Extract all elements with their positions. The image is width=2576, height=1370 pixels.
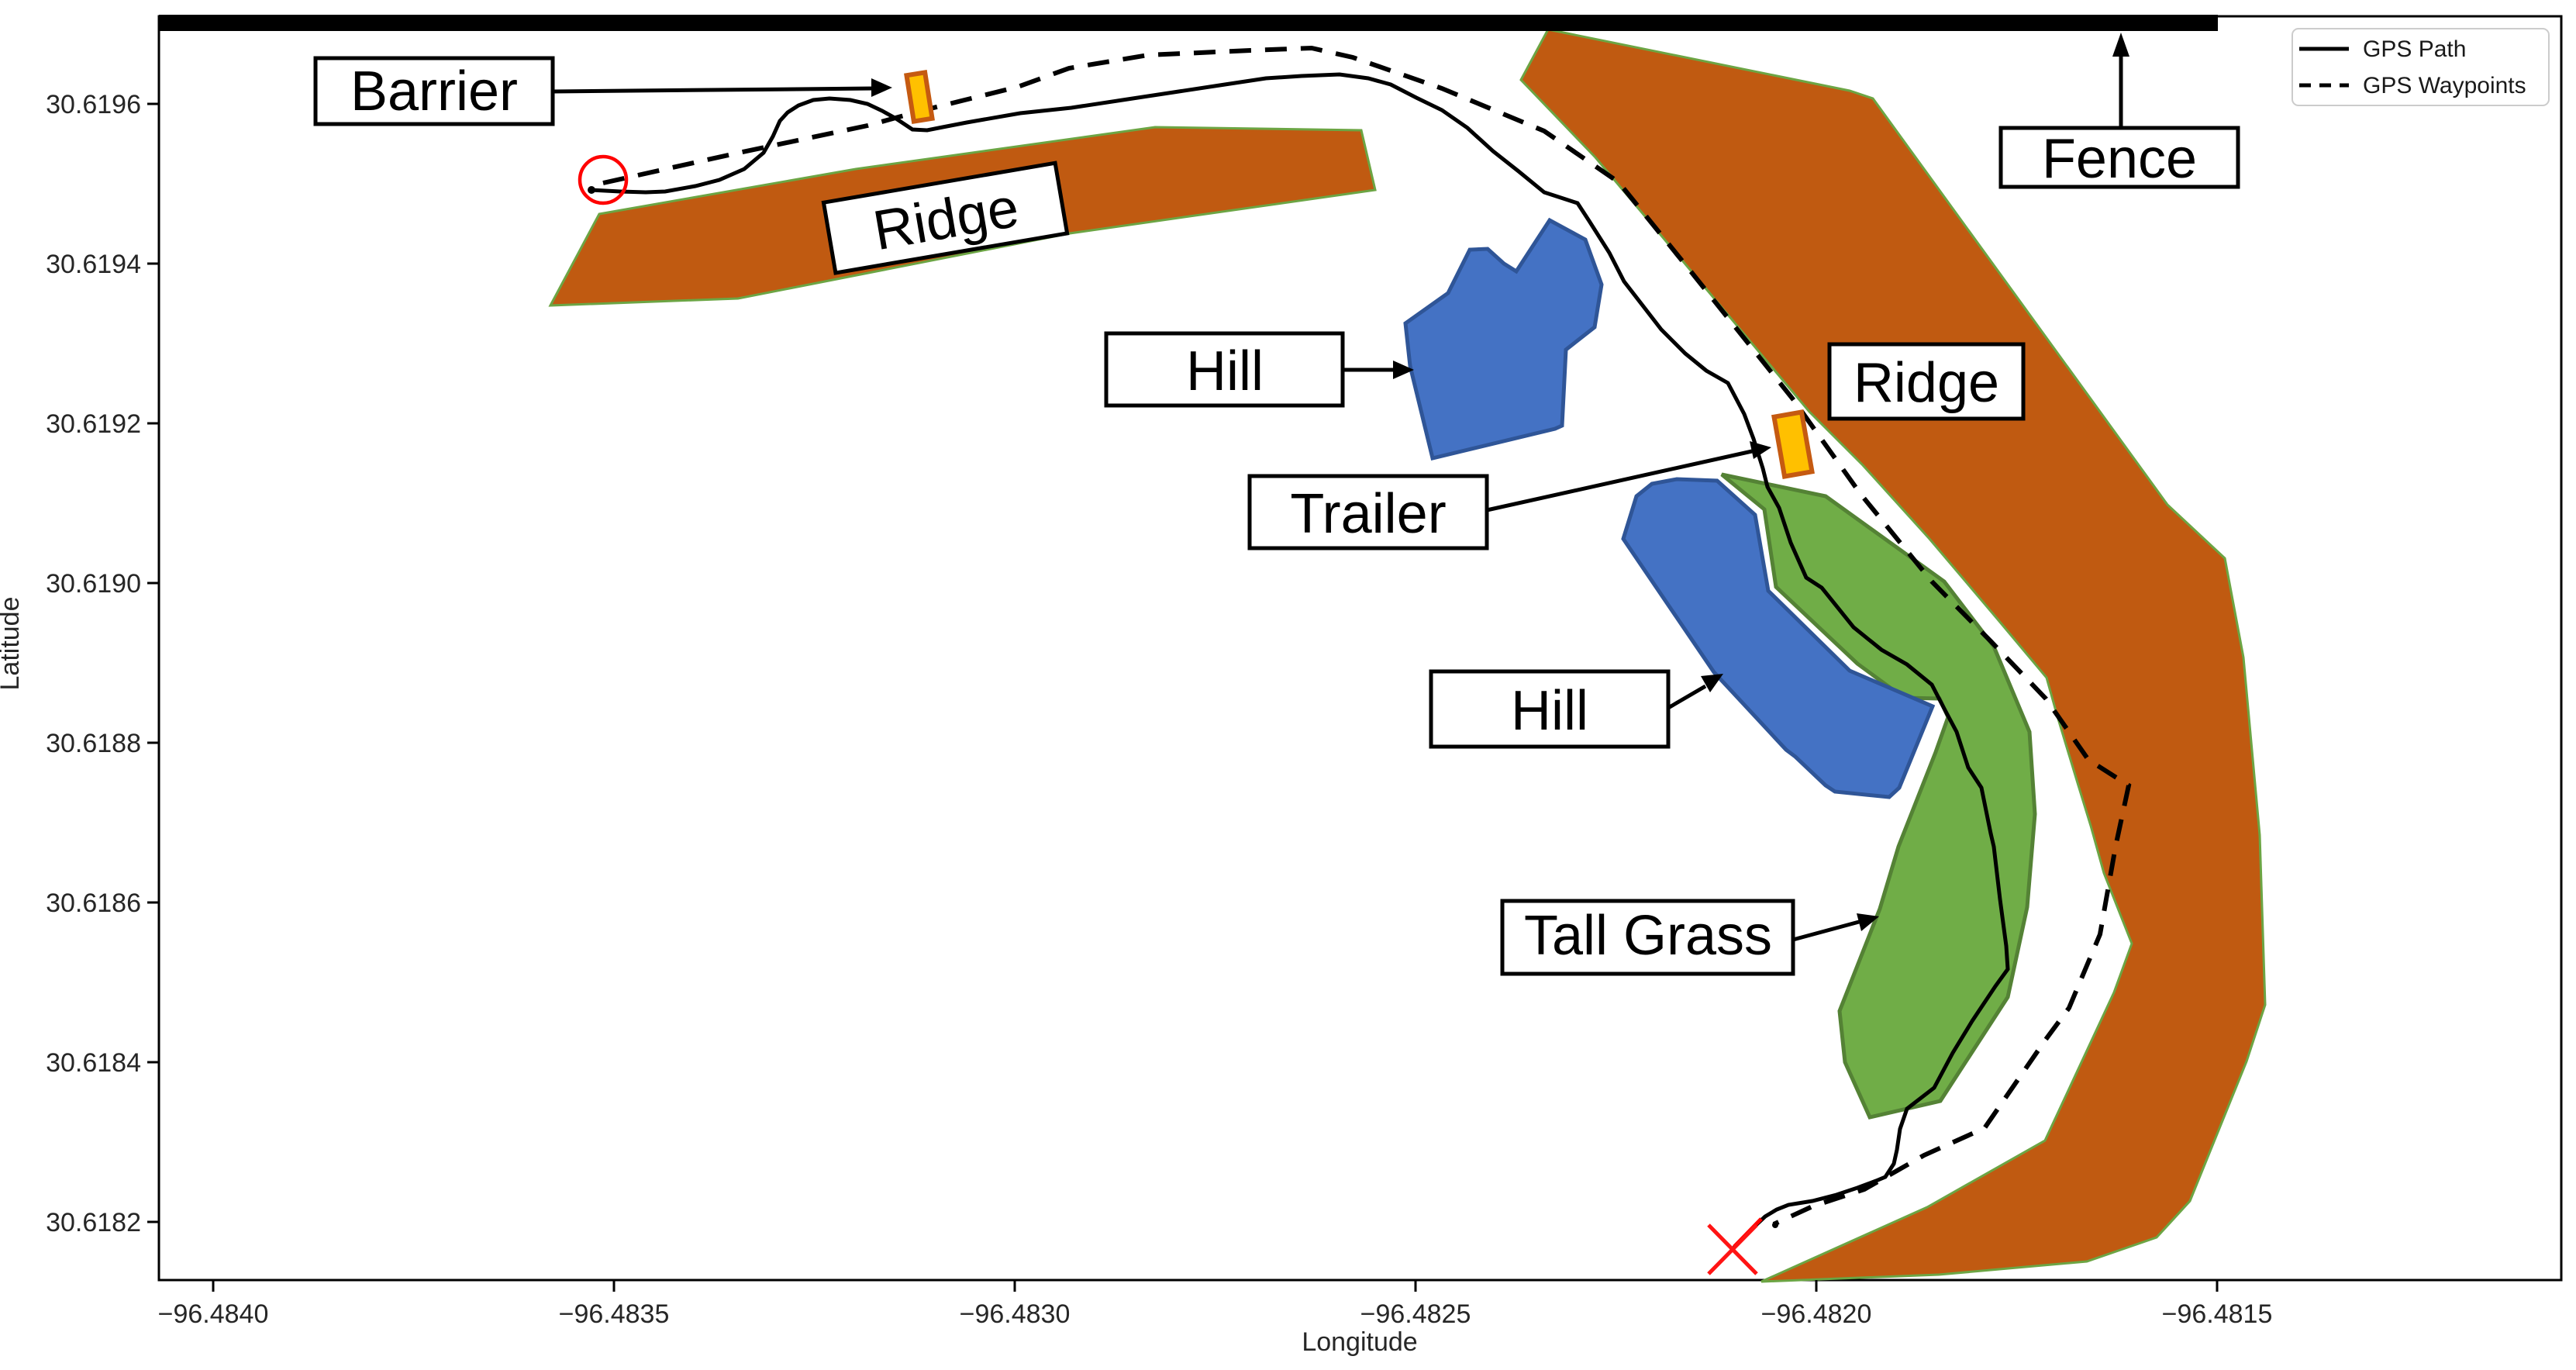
svg-text:Longitude: Longitude (1302, 1327, 1417, 1357)
svg-text:Tall Grass: Tall Grass (1524, 905, 1772, 967)
svg-text:−96.4835: −96.4835 (559, 1299, 670, 1329)
svg-text:30.6188: 30.6188 (46, 729, 141, 758)
svg-text:Hill: Hill (1186, 340, 1264, 402)
svg-text:30.6194: 30.6194 (46, 250, 141, 279)
svg-text:GPS Waypoints: GPS Waypoints (2363, 73, 2526, 98)
svg-text:Barrier: Barrier (350, 60, 518, 123)
svg-text:Latitude: Latitude (0, 597, 25, 691)
svg-text:30.6190: 30.6190 (46, 569, 141, 599)
svg-text:−96.4825: −96.4825 (1360, 1299, 1471, 1329)
svg-text:Trailer: Trailer (1290, 483, 1446, 545)
svg-text:GPS Path: GPS Path (2363, 36, 2466, 62)
svg-text:30.6182: 30.6182 (46, 1208, 141, 1237)
svg-text:−96.4830: −96.4830 (960, 1299, 1071, 1329)
svg-text:30.6196: 30.6196 (46, 90, 141, 119)
svg-text:30.6184: 30.6184 (46, 1048, 141, 1078)
svg-text:−96.4840: −96.4840 (158, 1299, 269, 1329)
svg-text:−96.4815: −96.4815 (2162, 1299, 2273, 1329)
svg-text:30.6186: 30.6186 (46, 889, 141, 918)
svg-text:−96.4820: −96.4820 (1761, 1299, 1872, 1329)
svg-text:Fence: Fence (2042, 128, 2197, 190)
svg-text:Ridge: Ridge (1854, 352, 1999, 414)
svg-text:Hill: Hill (1511, 680, 1588, 742)
svg-text:30.6192: 30.6192 (46, 409, 141, 439)
